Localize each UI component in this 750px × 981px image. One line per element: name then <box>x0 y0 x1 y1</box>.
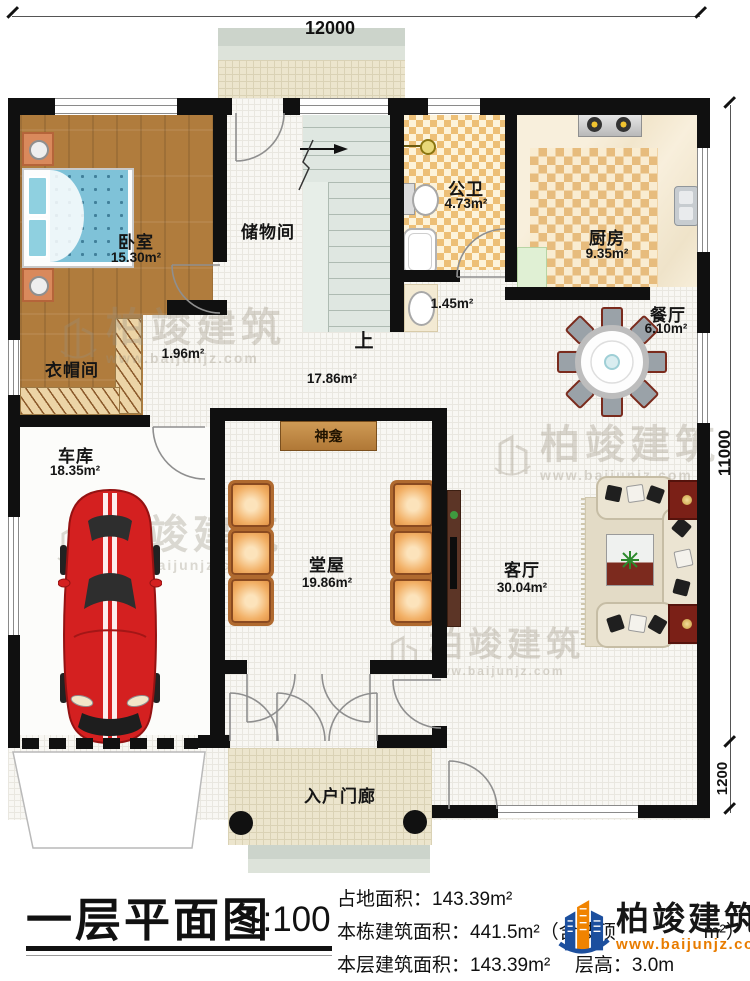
room-area-kitchen: 9.35m² <box>586 246 629 261</box>
room-area-living: 30.04m² <box>497 580 547 595</box>
room-area-passage: 1.96m² <box>162 346 205 361</box>
stairs-up-label: 上 <box>354 326 373 353</box>
room-label-hall: 堂屋 <box>309 551 345 576</box>
brand-logo-text: 柏竣建筑 <box>616 902 750 935</box>
brand-logo-url: www.baijunjz.com <box>616 936 750 953</box>
floor-area-text: 本层建筑面积：143.39m² <box>337 955 550 976</box>
floor-plan-page: 柏竣建筑 www.baijunjz.com 柏竣建筑 www.baijunjz.… <box>0 0 750 981</box>
room-label-porch: 入户门廊 <box>304 782 376 807</box>
room-label-storage: 储物间 <box>241 218 295 243</box>
title-underline <box>26 946 332 951</box>
room-area-bedroom: 15.30m² <box>111 250 161 265</box>
title-underline-thin <box>26 955 332 956</box>
room-label-living: 客厅 <box>504 556 540 581</box>
room-area-garage: 18.35m² <box>50 463 100 478</box>
floor-height-text: 层高：3.0m <box>575 955 674 976</box>
dimension-top-value: 12000 <box>305 18 355 39</box>
plan-scale: 1:100 <box>243 900 331 940</box>
stair-direction-arrow <box>299 140 348 190</box>
brand-logo: 柏竣建筑 www.baijunjz.com <box>558 896 750 958</box>
room-area-wash: 1.45m² <box>431 296 474 311</box>
dimension-right-value: 11000 <box>715 430 735 476</box>
door-swing-overlay <box>0 0 750 981</box>
dimension-line-top <box>12 16 700 17</box>
driveway <box>13 752 205 848</box>
room-area-hall: 19.86m² <box>302 575 352 590</box>
room-area-bath: 4.73m² <box>445 196 488 211</box>
brand-logo-icon <box>558 896 610 958</box>
room-area-hallway: 17.86m² <box>307 371 357 386</box>
plan-title: 一层平面图 <box>26 884 271 950</box>
room-label-cloak: 衣帽间 <box>45 356 99 381</box>
dimension-right-lower-value: 1200 <box>714 762 731 795</box>
room-area-dining: 6.10m² <box>645 321 688 336</box>
